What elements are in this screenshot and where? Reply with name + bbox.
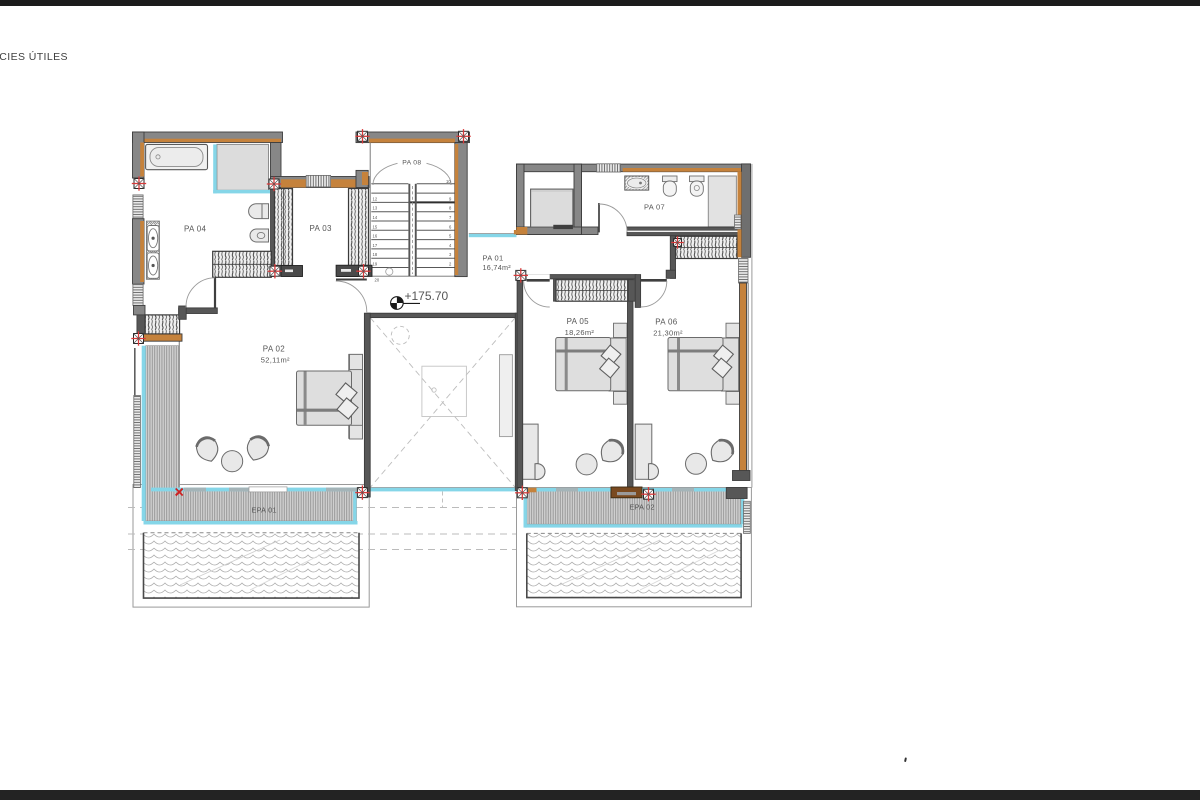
svg-text:17: 17 — [373, 243, 378, 248]
svg-text:PA 02: PA 02 — [263, 345, 286, 354]
svg-text:10: 10 — [446, 179, 451, 184]
svg-text:16,74m²: 16,74m² — [483, 263, 512, 272]
svg-text:12: 12 — [373, 196, 378, 201]
svg-text:19: 19 — [373, 262, 378, 267]
svg-text:PA 03: PA 03 — [310, 224, 333, 233]
svg-text:3: 3 — [449, 252, 452, 257]
svg-text:EPA 01: EPA 01 — [252, 506, 277, 515]
svg-text:13: 13 — [373, 206, 378, 211]
svg-text:8: 8 — [449, 206, 452, 211]
svg-text:PA 07: PA 07 — [644, 203, 665, 212]
svg-text:EPA 02: EPA 02 — [630, 503, 655, 512]
svg-text:18: 18 — [373, 252, 378, 257]
svg-text:PA 08: PA 08 — [402, 160, 421, 167]
svg-text:5: 5 — [449, 234, 452, 239]
svg-text:4: 4 — [449, 243, 452, 248]
svg-text:7: 7 — [449, 215, 452, 220]
svg-text:18,26m²: 18,26m² — [565, 328, 595, 337]
svg-text:9: 9 — [449, 196, 452, 201]
svg-text:PA 01: PA 01 — [483, 254, 504, 263]
svg-text:+175.70: +175.70 — [405, 289, 449, 303]
svg-text:2: 2 — [449, 262, 452, 267]
svg-text:PA 06: PA 06 — [655, 318, 678, 327]
svg-text:PA 05: PA 05 — [567, 317, 590, 326]
svg-text:20: 20 — [375, 278, 380, 283]
svg-text:21,30m²: 21,30m² — [653, 329, 683, 338]
svg-text:16: 16 — [373, 234, 378, 239]
svg-text:14: 14 — [373, 215, 378, 220]
svg-text:15: 15 — [373, 224, 378, 229]
svg-text:6: 6 — [449, 224, 452, 229]
svg-text:52,11m²: 52,11m² — [261, 356, 290, 365]
svg-text:PA 04: PA 04 — [184, 225, 207, 234]
